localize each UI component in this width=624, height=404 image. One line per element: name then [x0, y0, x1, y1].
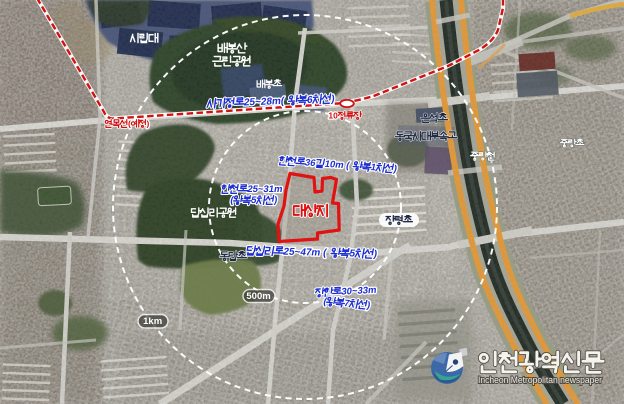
svg-text:500m: 500m — [246, 291, 270, 302]
svg-text:25~28m(: 25~28m( — [243, 96, 285, 109]
svg-text:25~31m: 25~31m — [246, 184, 283, 195]
svg-text:30~33m: 30~33m — [341, 285, 377, 298]
svg-text:10m (: 10m ( — [323, 159, 351, 172]
svg-text:25~47m (: 25~47m ( — [282, 247, 328, 259]
svg-text:1km: 1km — [143, 316, 162, 327]
svg-text:(: ( — [128, 118, 131, 128]
svg-text:Incheon Metropolitan newspaper: Incheon Metropolitan newspaper — [478, 375, 602, 385]
svg-text:): ) — [147, 118, 150, 128]
svg-text:10: 10 — [328, 110, 338, 120]
